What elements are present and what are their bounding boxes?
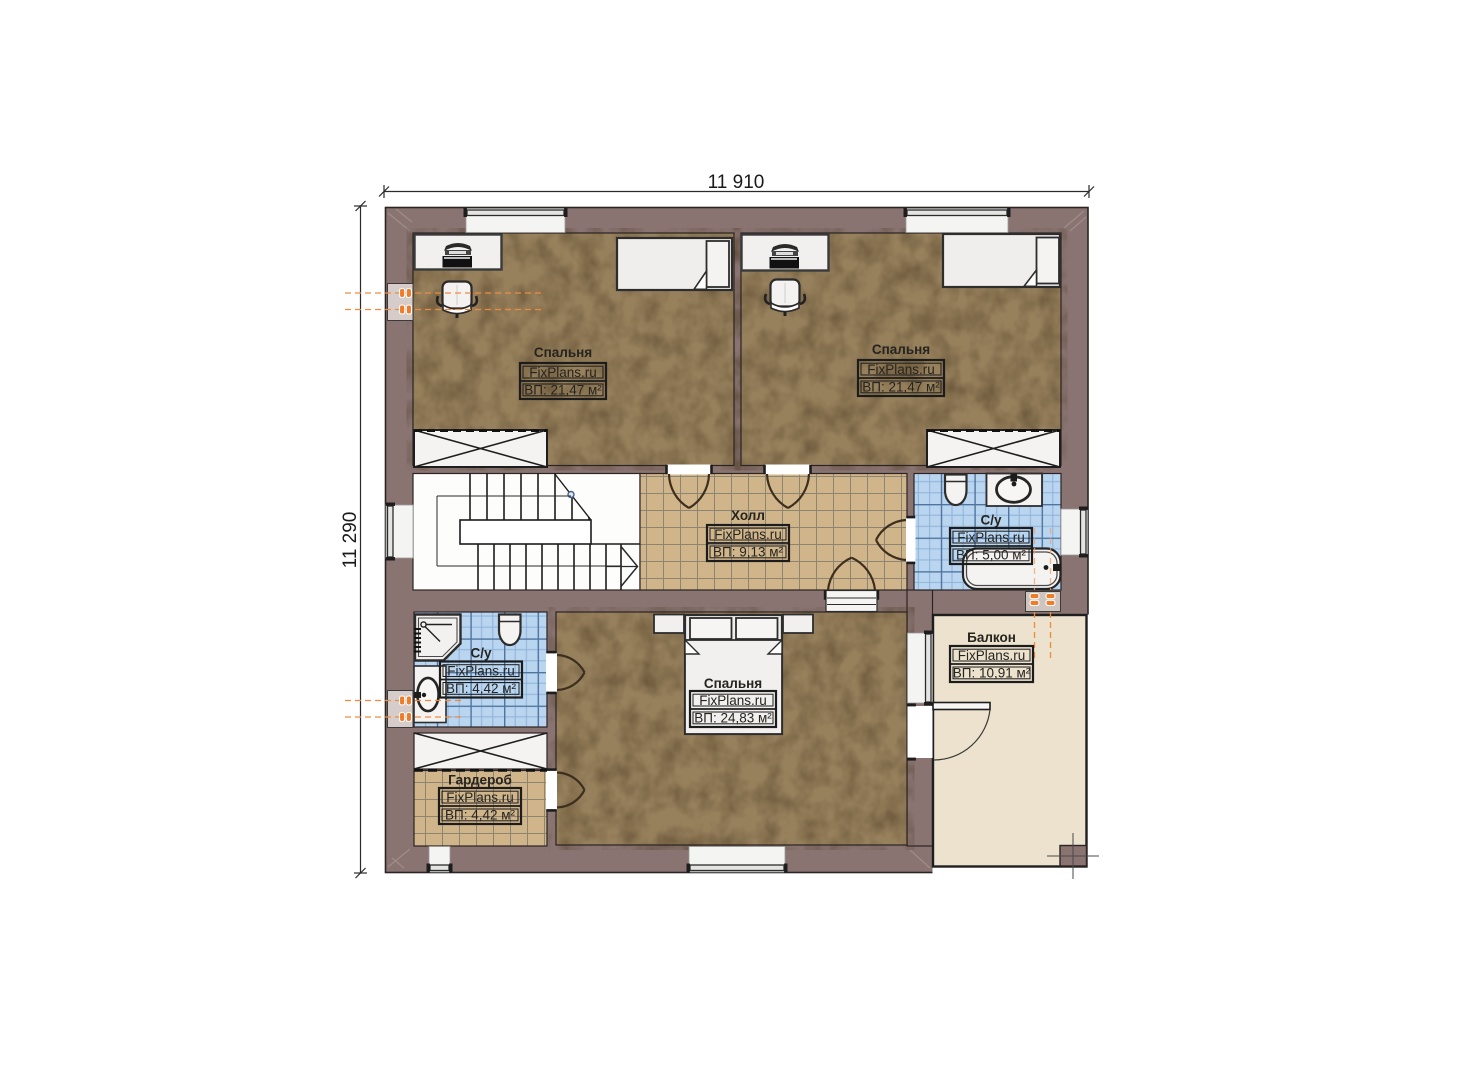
svg-text:FixPlans.ru: FixPlans.ru — [957, 530, 1025, 545]
svg-text:FixPlans.ru: FixPlans.ru — [529, 365, 597, 380]
svg-text:Спальня: Спальня — [872, 342, 930, 357]
svg-text:FixPlans.ru: FixPlans.ru — [447, 663, 515, 678]
svg-text:С/у: С/у — [470, 646, 492, 661]
svg-text:ВП: 24,83 м²: ВП: 24,83 м² — [694, 711, 772, 726]
svg-text:FixPlans.ru: FixPlans.ru — [867, 362, 935, 377]
svg-text:Спальня: Спальня — [704, 676, 762, 691]
svg-text:FixPlans.ru: FixPlans.ru — [714, 527, 782, 542]
svg-text:Балкон: Балкон — [967, 630, 1016, 645]
svg-text:Гардероб: Гардероб — [448, 773, 512, 788]
svg-text:ВП: 5,00 м²: ВП: 5,00 м² — [956, 548, 1027, 563]
svg-text:FixPlans.ru: FixPlans.ru — [699, 693, 767, 708]
svg-text:ВП: 21,47 м²: ВП: 21,47 м² — [524, 383, 602, 398]
svg-text:FixPlans.ru: FixPlans.ru — [958, 648, 1026, 663]
svg-text:С/у: С/у — [980, 513, 1002, 528]
svg-text:FixPlans.ru: FixPlans.ru — [446, 790, 514, 805]
svg-text:ВП: 4,42 м²: ВП: 4,42 м² — [445, 808, 516, 823]
svg-text:11 910: 11 910 — [708, 172, 765, 193]
svg-text:11 290: 11 290 — [340, 512, 361, 569]
svg-text:Холл: Холл — [731, 508, 765, 523]
svg-text:ВП: 21,47 м²: ВП: 21,47 м² — [862, 380, 940, 395]
svg-text:ВП: 4,42 м²: ВП: 4,42 м² — [446, 681, 517, 696]
svg-text:Спальня: Спальня — [534, 345, 592, 360]
svg-text:ВП: 9,13 м²: ВП: 9,13 м² — [713, 545, 784, 560]
svg-text:ВП: 10,91 м²: ВП: 10,91 м² — [953, 666, 1031, 681]
